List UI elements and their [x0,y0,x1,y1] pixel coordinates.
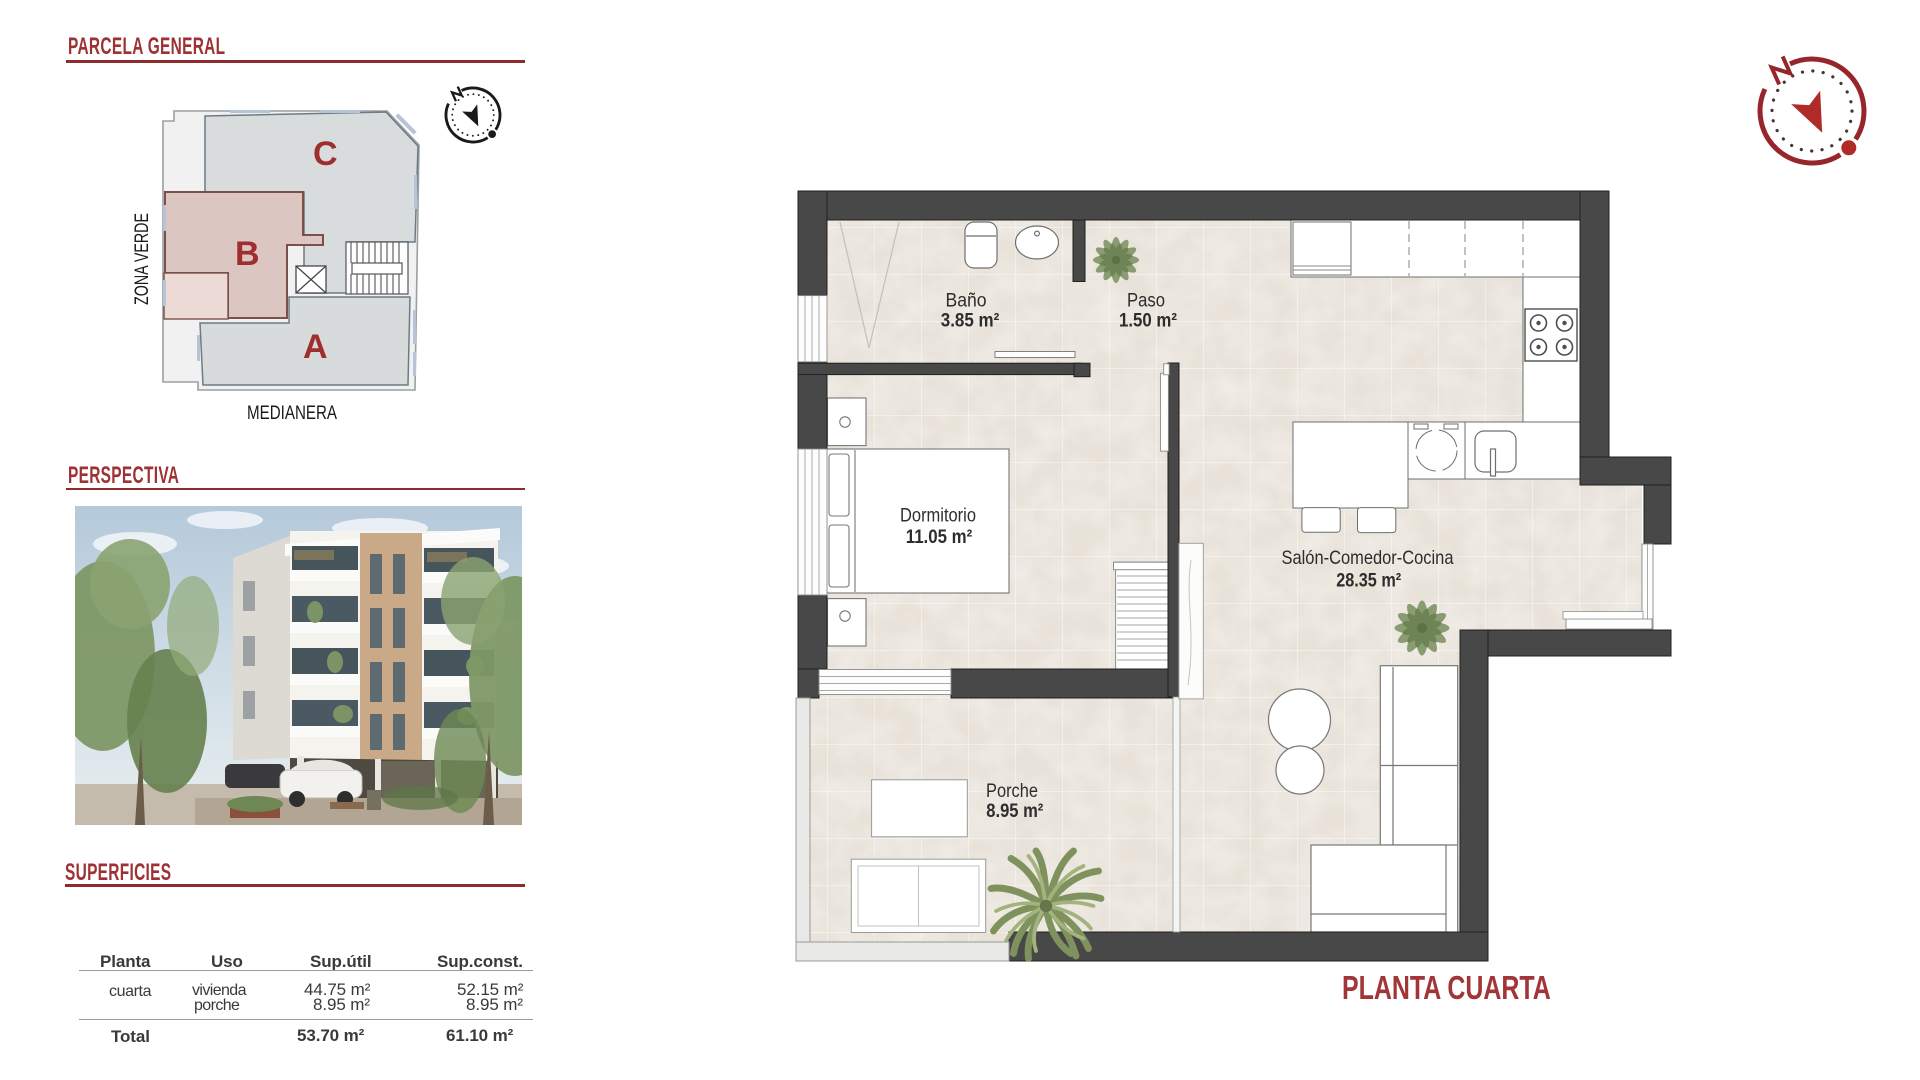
svg-text:MEDIANERA: MEDIANERA [247,402,337,424]
svg-text:Salón-Comedor-Cocina: Salón-Comedor-Cocina [1282,547,1454,569]
svg-text:Porche: Porche [986,780,1038,802]
svg-text:Dormitorio: Dormitorio [900,504,976,526]
svg-text:A: A [303,328,328,366]
svg-text:ZONA VERDE: ZONA VERDE [132,213,153,305]
svg-text:C: C [313,135,338,173]
svg-text:28.35 m²: 28.35 m² [1336,570,1401,592]
svg-text:11.05 m²: 11.05 m² [906,526,973,548]
svg-text:Baño: Baño [946,291,987,312]
svg-text:Paso: Paso [1127,291,1165,312]
svg-text:1.50 m²: 1.50 m² [1119,310,1177,332]
svg-text:3.85 m²: 3.85 m² [941,310,1000,332]
svg-text:8.95 m²: 8.95 m² [986,800,1043,822]
svg-text:B: B [235,235,260,273]
